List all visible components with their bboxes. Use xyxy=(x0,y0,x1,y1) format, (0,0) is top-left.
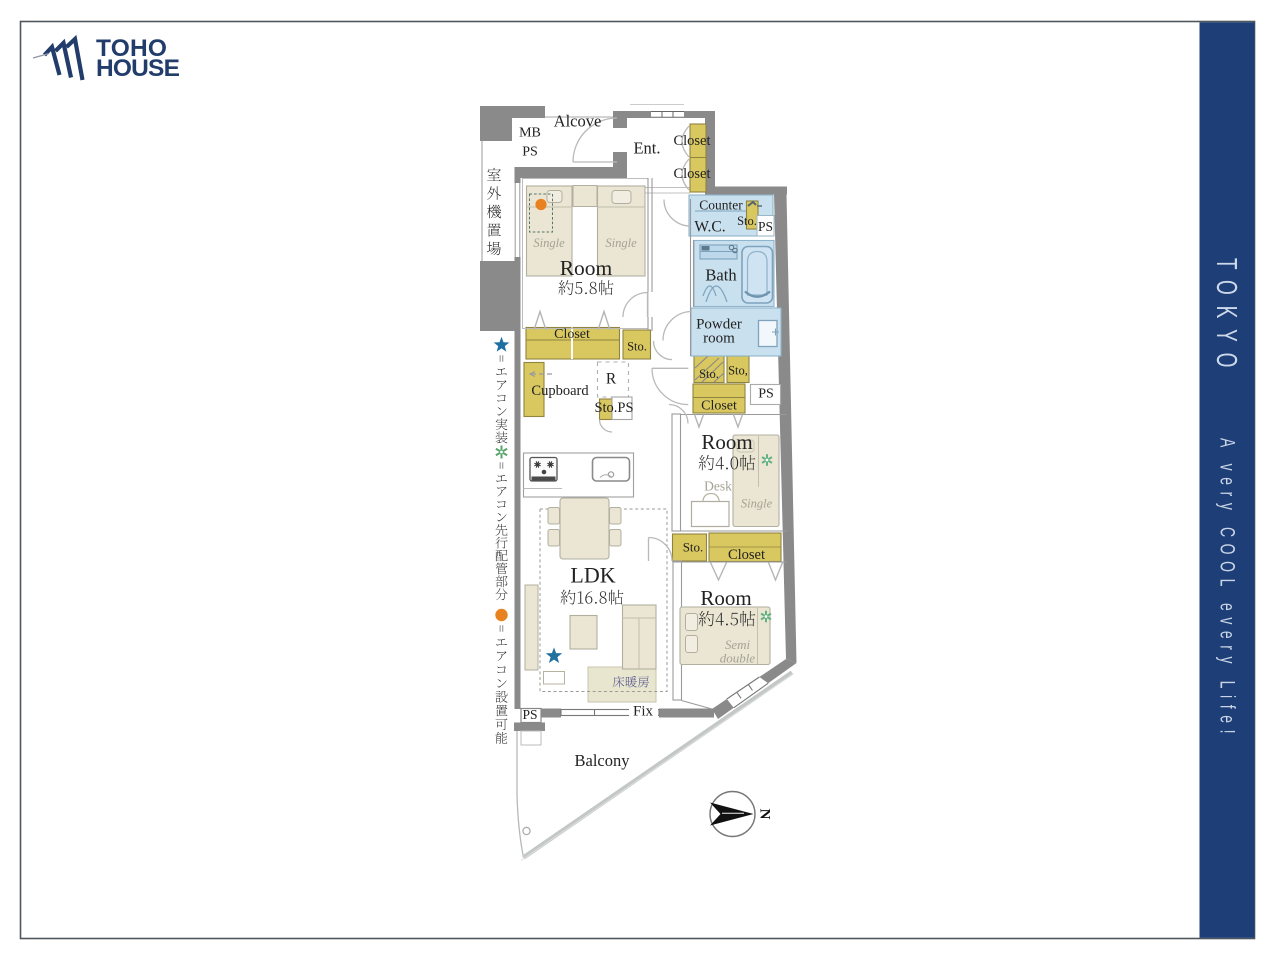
svg-text:Room: Room xyxy=(560,256,613,280)
svg-text:Closet: Closet xyxy=(673,166,710,182)
svg-text:room: room xyxy=(703,331,735,347)
svg-text:Closet: Closet xyxy=(554,327,590,342)
svg-text:Bath: Bath xyxy=(705,266,737,285)
svg-text:Sto.: Sto. xyxy=(627,340,647,354)
svg-text:Alcove: Alcove xyxy=(554,112,602,131)
svg-text:TOKYO: TOKYO xyxy=(1210,258,1242,378)
svg-text:Desk: Desk xyxy=(704,479,732,494)
svg-text:Closet: Closet xyxy=(673,133,710,149)
svg-text:Ent.: Ent. xyxy=(633,139,660,158)
svg-text:Cupboard: Cupboard xyxy=(531,383,589,399)
svg-text:N: N xyxy=(757,809,773,820)
svg-text:Single: Single xyxy=(741,497,773,511)
svg-text:double: double xyxy=(720,651,756,666)
svg-text:Fix: Fix xyxy=(633,704,654,720)
svg-text:Sto.: Sto. xyxy=(699,367,719,381)
svg-text:HOUSE: HOUSE xyxy=(96,55,180,82)
svg-text:PS: PS xyxy=(758,387,774,402)
svg-text:PS: PS xyxy=(522,707,537,722)
svg-text:LDK: LDK xyxy=(570,563,615,588)
svg-text:Room: Room xyxy=(701,430,752,454)
svg-text:Sto.: Sto. xyxy=(737,214,757,228)
svg-text:Closet: Closet xyxy=(701,399,737,414)
svg-text:Sto.: Sto. xyxy=(683,540,704,555)
svg-text:Sto,: Sto, xyxy=(728,364,748,378)
svg-text:PS: PS xyxy=(522,145,538,160)
svg-text:Single: Single xyxy=(605,236,637,250)
svg-text:A very COOL every Life!: A very COOL every Life! xyxy=(1216,438,1240,740)
svg-text:W.C.: W.C. xyxy=(694,219,725,236)
svg-text:Counter: Counter xyxy=(699,198,743,213)
svg-text:Balcony: Balcony xyxy=(575,751,631,770)
svg-text:MB: MB xyxy=(519,126,541,141)
svg-text:R: R xyxy=(606,371,617,388)
svg-text:PS: PS xyxy=(758,219,773,234)
svg-text:Closet: Closet xyxy=(728,547,765,563)
svg-text:Sto.PS: Sto.PS xyxy=(594,400,633,416)
svg-text:Room: Room xyxy=(700,586,751,610)
svg-text:Single: Single xyxy=(533,236,565,250)
